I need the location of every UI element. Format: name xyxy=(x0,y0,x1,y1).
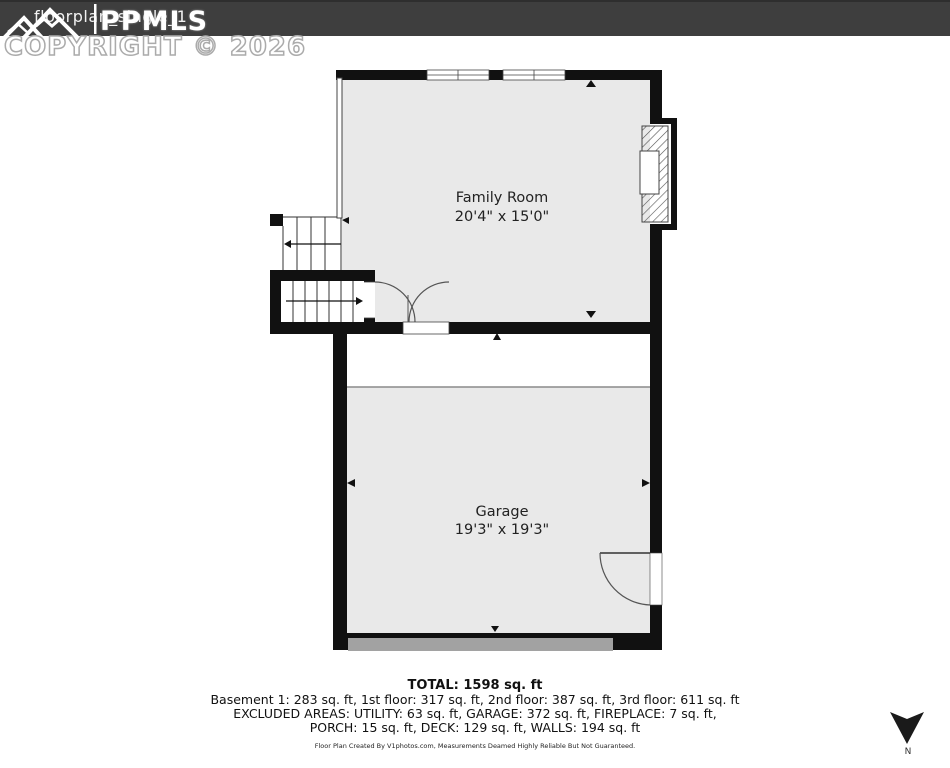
garage-dimensions: 19'3" x 19'3" xyxy=(455,522,549,538)
area-summary: TOTAL: 1598 sq. ft Basement 1: 283 sq. f… xyxy=(0,679,950,750)
floor-plan-page: floorplan_single_1 PPMLS COPYRIGHT © 202… xyxy=(0,0,950,768)
room-fills xyxy=(342,78,650,634)
stairs-upper xyxy=(283,217,341,270)
garage-name: Garage xyxy=(475,504,528,520)
excluded-areas-1: EXCLUDED AREAS: UTILITY: 63 sq. ft, GARA… xyxy=(0,707,950,721)
floor-areas: Basement 1: 283 sq. ft, 1st floor: 317 s… xyxy=(0,693,950,707)
excluded-areas-2: PORCH: 15 sq. ft, DECK: 129 sq. ft, WALL… xyxy=(0,721,950,735)
disclaimer: Floor Plan Created By V1photos.com, Meas… xyxy=(0,742,950,750)
garage-door xyxy=(348,638,613,651)
total-area: TOTAL: 1598 sq. ft xyxy=(0,679,950,693)
family-room-name: Family Room xyxy=(456,190,549,206)
fireplace xyxy=(640,118,677,230)
north-label: N xyxy=(893,747,923,757)
family-room-dimensions: 20'4" x 15'0" xyxy=(455,209,549,225)
floor-plan-drawing: Family Room 20'4" x 15'0" Garage 19'3" x… xyxy=(0,0,950,768)
thin-wall xyxy=(337,78,342,218)
stairs-lower xyxy=(281,281,364,322)
